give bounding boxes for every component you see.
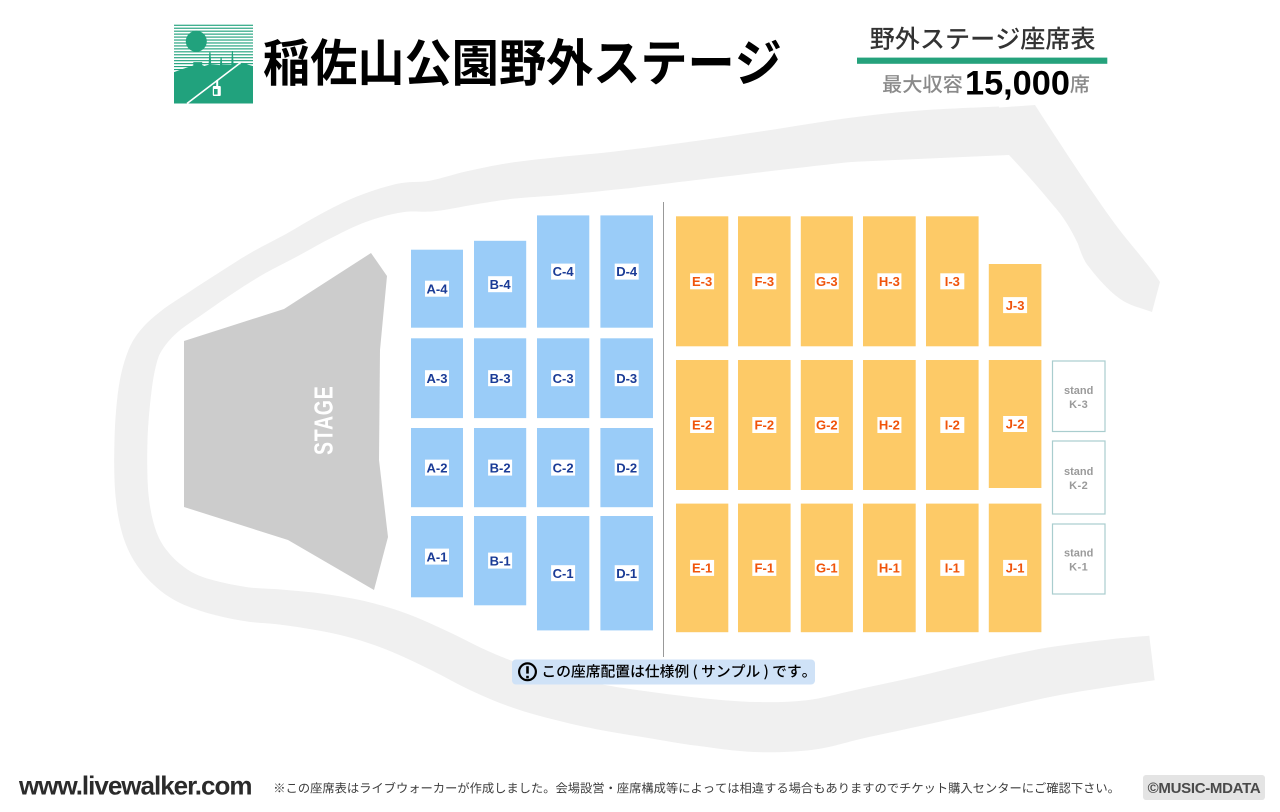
svg-text:D-3: D-3 <box>616 371 637 386</box>
svg-text:15,000: 15,000 <box>965 64 1070 102</box>
svg-text:H-3: H-3 <box>879 274 900 289</box>
svg-text:A-1: A-1 <box>427 549 448 564</box>
svg-text:C-3: C-3 <box>553 371 574 386</box>
svg-text:B-2: B-2 <box>490 460 511 475</box>
svg-text:E-1: E-1 <box>692 561 712 576</box>
svg-text:STAGE: STAGE <box>309 386 338 455</box>
svg-text:A-3: A-3 <box>427 371 448 386</box>
svg-text:B-3: B-3 <box>490 371 511 386</box>
svg-text:G-1: G-1 <box>816 561 838 576</box>
svg-text:D-1: D-1 <box>616 566 637 581</box>
svg-text:C-2: C-2 <box>553 460 574 475</box>
svg-text:G-2: G-2 <box>816 418 838 433</box>
svg-text:B-1: B-1 <box>490 553 511 568</box>
svg-text:K-3: K-3 <box>1069 399 1088 411</box>
svg-text:H-1: H-1 <box>879 561 900 576</box>
svg-text:stand: stand <box>1064 548 1093 560</box>
svg-text:C-1: C-1 <box>553 566 574 581</box>
svg-text:G-3: G-3 <box>816 274 838 289</box>
svg-text:www.livewalker.com: www.livewalker.com <box>18 770 252 800</box>
svg-text:©MUSIC-MDATA: ©MUSIC-MDATA <box>1148 780 1261 797</box>
svg-text:I-1: I-1 <box>945 561 960 576</box>
svg-text:E-3: E-3 <box>692 274 712 289</box>
svg-text:K-2: K-2 <box>1069 480 1088 492</box>
svg-text:H-2: H-2 <box>879 418 900 433</box>
svg-text:E-2: E-2 <box>692 418 712 433</box>
svg-text:D-2: D-2 <box>616 460 637 475</box>
svg-text:A-4: A-4 <box>427 281 449 296</box>
svg-text:F-3: F-3 <box>755 274 775 289</box>
svg-text:A-2: A-2 <box>427 460 448 475</box>
svg-text:J-2: J-2 <box>1006 417 1025 432</box>
svg-text:stand: stand <box>1064 385 1093 397</box>
svg-text:I-3: I-3 <box>945 274 960 289</box>
svg-text:J-1: J-1 <box>1006 561 1025 576</box>
svg-text:J-3: J-3 <box>1006 298 1025 313</box>
svg-text:B-4: B-4 <box>490 277 512 292</box>
svg-text:F-2: F-2 <box>755 418 775 433</box>
svg-text:D-4: D-4 <box>616 264 638 279</box>
svg-text:C-4: C-4 <box>553 264 575 279</box>
svg-text:I-2: I-2 <box>945 418 960 433</box>
svg-text:stand: stand <box>1064 466 1093 478</box>
svg-text:F-1: F-1 <box>755 561 775 576</box>
svg-text:K-1: K-1 <box>1069 562 1088 574</box>
